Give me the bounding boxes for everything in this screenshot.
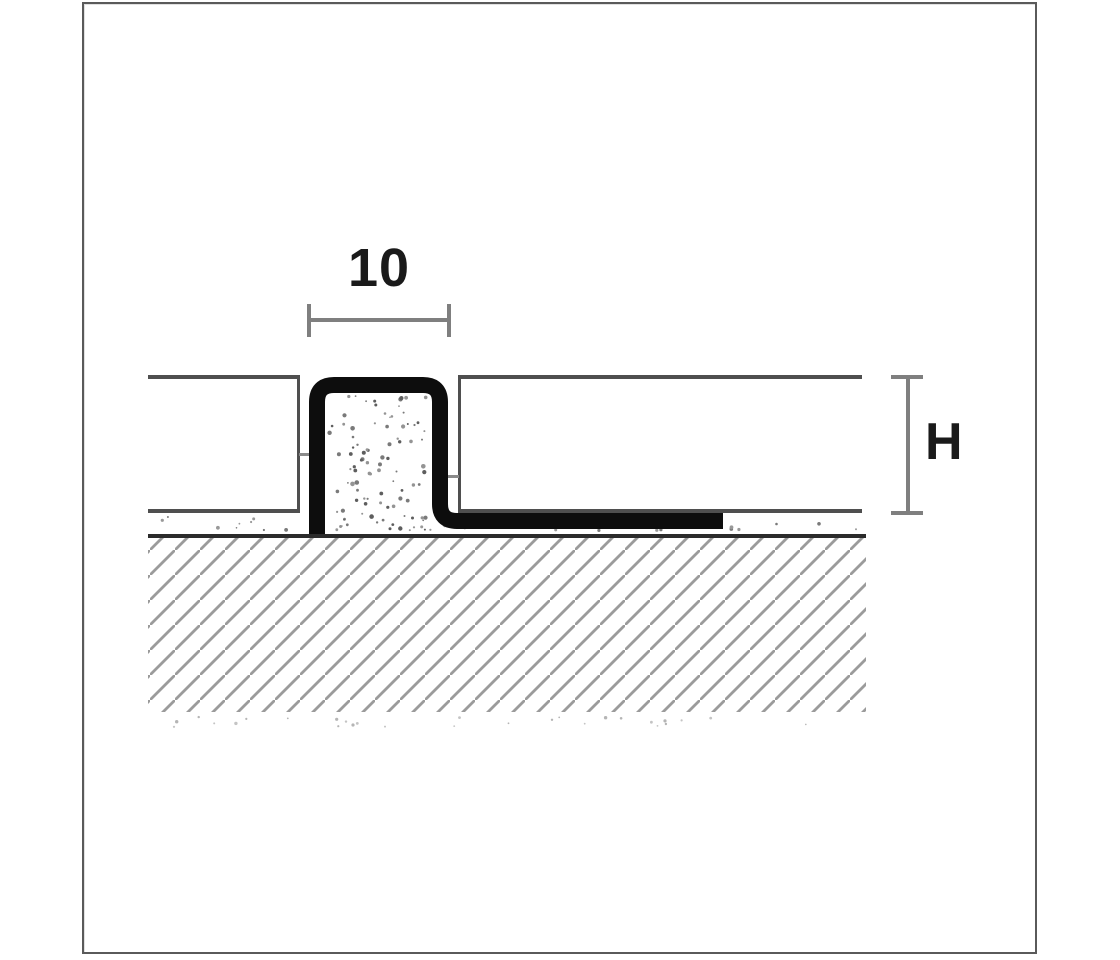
tile-right [458,375,862,513]
substrate-top-line [148,534,866,538]
tile-left [148,375,300,513]
joint-width-dimension-line [309,318,449,322]
joint-gap-mark-left [299,453,310,456]
joint-width-tick-left [307,304,311,337]
height-tick-top [891,375,923,379]
height-label: H [925,416,963,468]
height-dimension-line [906,377,910,514]
joint-gap-mark-right [448,475,459,478]
page: 10 H [0,0,1120,960]
joint-width-label: 10 [309,241,449,295]
height-tick-bottom [891,511,923,515]
joint-width-tick-right [447,304,451,337]
